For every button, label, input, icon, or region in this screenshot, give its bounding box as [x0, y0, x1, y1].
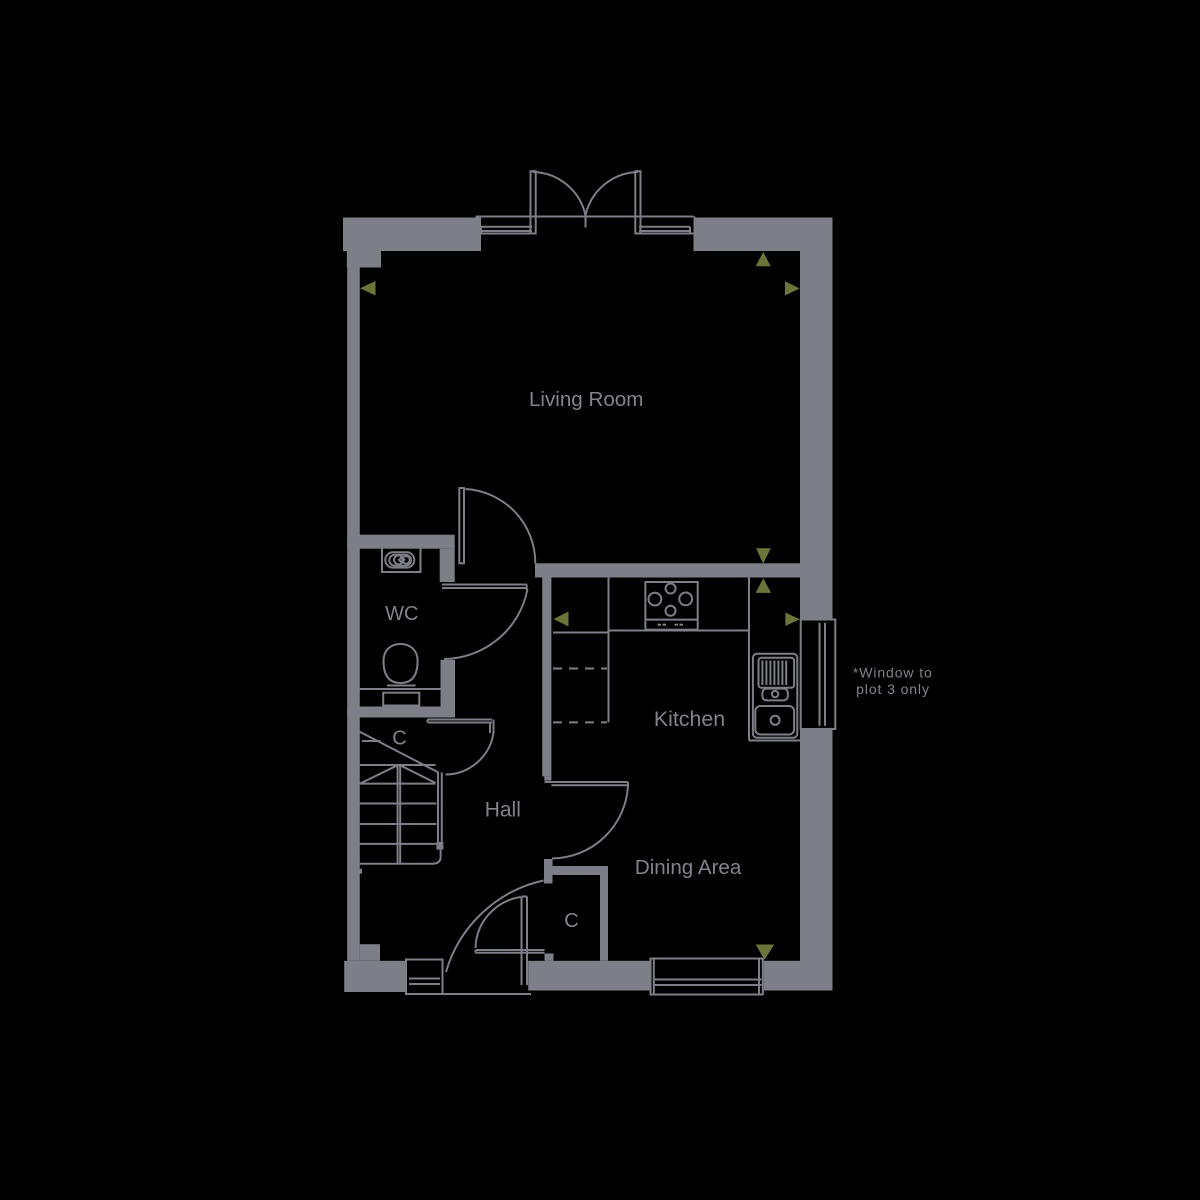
svg-text:*Window to: *Window to: [853, 665, 933, 681]
svg-text:C: C: [392, 728, 406, 750]
svg-text:Living Room: Living Room: [529, 388, 643, 411]
svg-text:C: C: [564, 910, 578, 932]
svg-text:Hall: Hall: [485, 798, 521, 821]
svg-text:Dining Area: Dining Area: [635, 856, 742, 879]
svg-text:WC: WC: [385, 603, 418, 625]
svg-text:Kitchen: Kitchen: [654, 707, 725, 731]
svg-text:plot 3 only: plot 3 only: [856, 681, 930, 697]
